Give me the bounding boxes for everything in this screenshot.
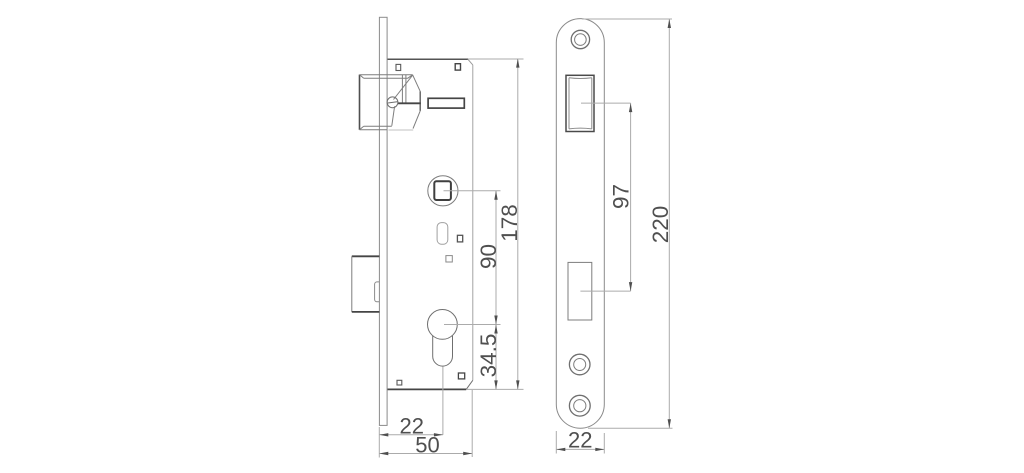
svg-text:97: 97 — [609, 184, 634, 209]
svg-text:220: 220 — [648, 206, 673, 244]
svg-text:90: 90 — [476, 244, 501, 269]
svg-text:34.5: 34.5 — [476, 334, 501, 378]
svg-text:22: 22 — [568, 428, 592, 453]
svg-text:50: 50 — [415, 432, 439, 457]
svg-text:178: 178 — [497, 204, 522, 242]
